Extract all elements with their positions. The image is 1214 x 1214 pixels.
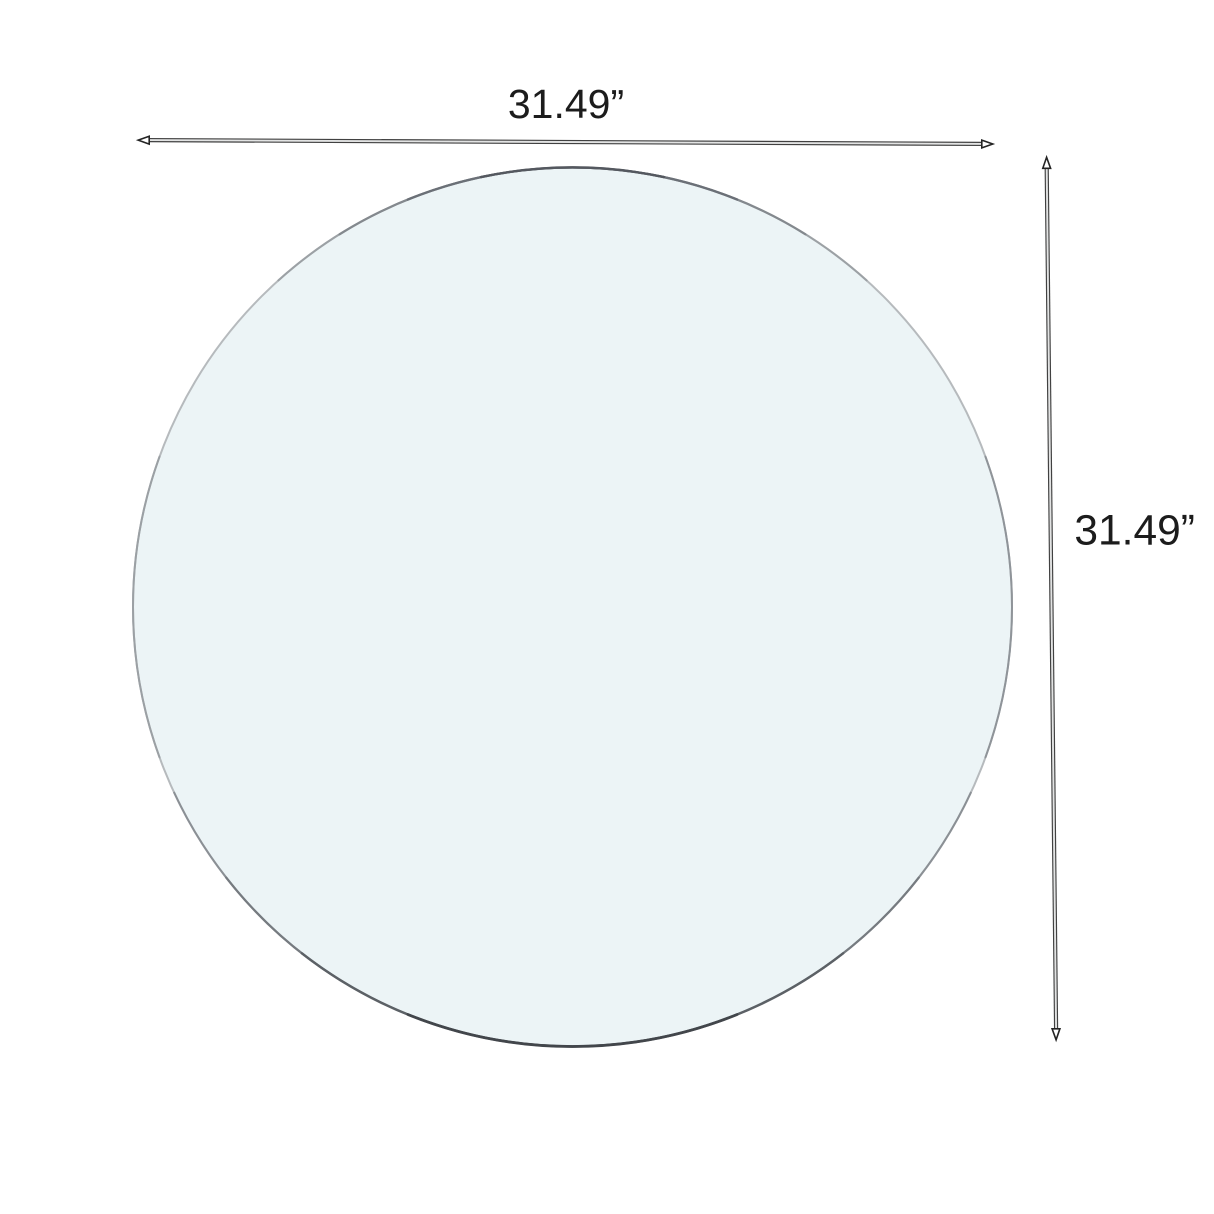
svg-text:31.49”: 31.49”: [1074, 507, 1195, 554]
svg-text:31.49”: 31.49”: [508, 81, 624, 127]
